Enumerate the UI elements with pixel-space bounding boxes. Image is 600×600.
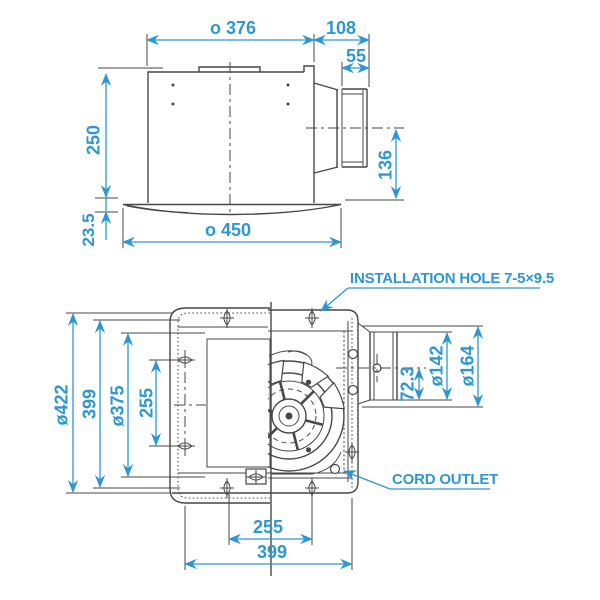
side-slot — [345, 442, 359, 462]
dim-duct-inner-dia: ø142 — [426, 345, 446, 386]
impeller-blades — [232, 359, 346, 417]
dim-duct-length: 55 — [346, 46, 366, 66]
dim-opening-dia: ø375 — [107, 385, 127, 426]
cord-outlet-leader — [344, 471, 390, 489]
dim-flange-width: o 450 — [205, 220, 251, 240]
dimensions-bottom-view: ø422 399 ø375 255 72.3 ø142 ø164 255 399 — [51, 314, 478, 564]
dim-hole-span-horizontal: 255 — [253, 517, 283, 537]
impeller — [232, 359, 346, 459]
housing-body — [148, 62, 314, 215]
dim-duct-depth: 108 — [326, 18, 356, 38]
installation-hole-leader — [321, 288, 348, 311]
ceiling-panel — [123, 205, 341, 215]
ventilation-fan-drawing: o 376 108 55 250 23.5 o 450 136 — [0, 0, 600, 600]
dim-flange-height: 23.5 — [79, 213, 98, 246]
dim-overall-height: ø422 — [51, 384, 71, 425]
dim-duct-offset: 72.3 — [397, 366, 417, 401]
extension-lines-bottom — [66, 313, 352, 570]
installation-hole-label: INSTALLATION HOLE 7-5×9.5 — [350, 270, 554, 287]
dim-duct-outer-dia: ø164 — [457, 345, 477, 386]
dim-duct-center-height: 136 — [375, 150, 395, 180]
dim-body-height: 250 — [83, 125, 103, 155]
dim-side-hole-span: 255 — [136, 388, 156, 418]
dim-body-width: o 376 — [210, 18, 256, 38]
top-view-side-elevation: o 376 108 55 250 23.5 o 450 136 — [79, 18, 404, 248]
dim-hole-span-vertical: 399 — [79, 389, 99, 419]
technical-drawing: o 376 108 55 250 23.5 o 450 136 — [0, 0, 600, 600]
junction-box — [304, 66, 314, 203]
dimensions-top-view: o 376 108 55 250 23.5 o 450 136 — [79, 18, 396, 247]
fan-internals — [232, 351, 346, 474]
extension-lines-top — [95, 34, 404, 248]
cord-outlet-label: CORD OUTLET — [392, 471, 498, 488]
cord-outlet-grommet — [331, 465, 340, 474]
intake-mesh — [207, 339, 270, 467]
bottom-view-plan: ø422 399 ø375 255 72.3 ø142 ø164 255 399… — [51, 270, 554, 576]
dim-frame-width: 399 — [257, 542, 287, 562]
